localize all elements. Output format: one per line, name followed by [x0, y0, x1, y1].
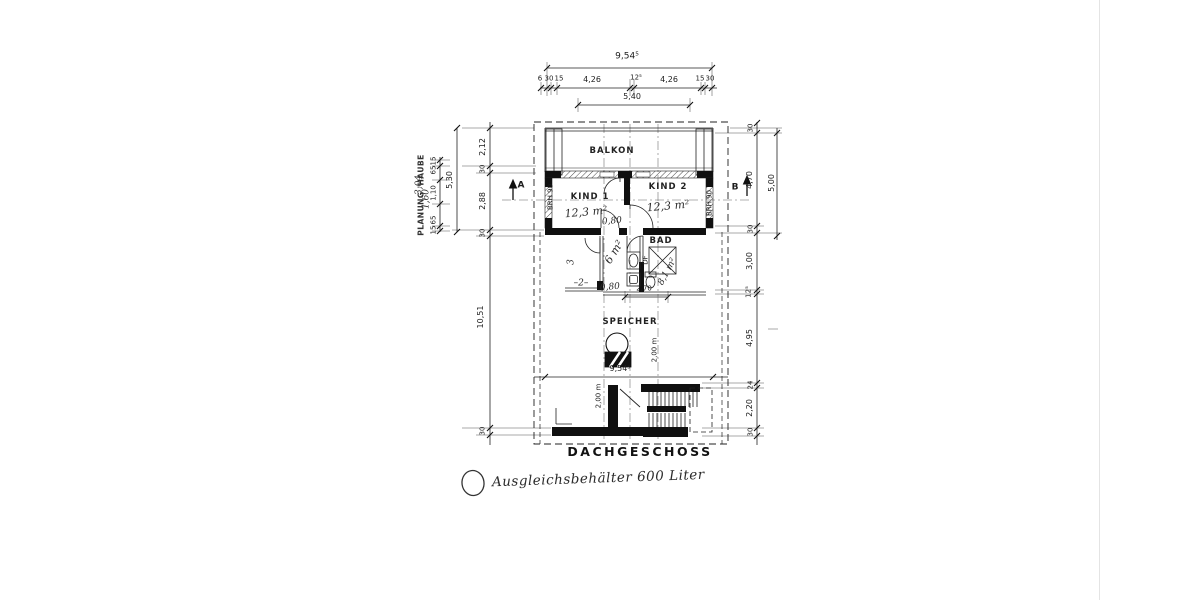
room-bad: BAD — [649, 237, 672, 246]
kind-partition-wall — [624, 178, 630, 205]
roof-outline-dashed — [534, 122, 728, 444]
dim-top-15l: 15 — [555, 76, 564, 83]
dim-right-30b: 30 — [748, 225, 755, 234]
headroom-line-a: 2,00 m — [652, 338, 659, 363]
room-kind2-area: 12,3 m² — [646, 199, 690, 214]
door-width-a: 0,80 — [602, 217, 623, 228]
dim-top-426l: 4,26 — [583, 76, 601, 84]
scan-edge-line — [1099, 0, 1100, 600]
room-balkon: BALKON — [589, 147, 634, 156]
sill-label-left: BRH 90 — [548, 184, 555, 210]
dim-right-30c: 30 — [748, 428, 755, 437]
dim-top-30l: 30 — [545, 76, 554, 83]
dim-inner-total: 9,54⁵ — [609, 365, 630, 373]
roof-window-label: DF — [643, 255, 650, 264]
section-a-label: A — [518, 182, 525, 191]
dim-left-110: 1,10 — [431, 185, 438, 201]
dim-top-total: 9,54⁵ — [615, 53, 639, 62]
dim-top-540: 5,40 — [623, 93, 641, 101]
dim-right-30a: 30 — [748, 124, 755, 133]
dim-left-288: 2,88 — [479, 192, 487, 210]
floor-plan-drawing — [0, 0, 1200, 600]
scanned-floorplan-page: 9,54⁵ 6 30 15 4,26 12⁵ 4,26 15 30 5,40 P… — [0, 0, 1200, 600]
door-width-b: 0,80 — [600, 283, 621, 294]
front-wall — [545, 171, 713, 178]
room-speicher: SPEICHER — [602, 318, 657, 327]
dim-right-24: 24 — [748, 381, 755, 390]
dim-left-30c: 30 — [480, 427, 487, 436]
dim-left-hw304: 3,04 — [416, 175, 425, 195]
headroom-line-b: 2,00 m — [596, 384, 603, 409]
middle-wall — [545, 228, 706, 235]
floor-title: DACHGESCHOSS — [567, 446, 712, 459]
dim-left-15a: 15 — [431, 226, 438, 235]
dim-left-530: 5,30 — [446, 171, 454, 189]
sill-label-right: BRH 90 — [707, 190, 714, 216]
storage-depth-note: 3 — [568, 259, 577, 265]
room-kind1: KIND 1 — [571, 193, 610, 202]
dim-right-495: 4,95 — [746, 329, 754, 347]
dim-bad-270: 2,70 — [636, 286, 652, 293]
dim-right-300: 3,00 — [746, 252, 754, 270]
dim-top-30r: 30 — [706, 76, 715, 83]
section-b-label: B — [732, 184, 739, 193]
dim-top-6: 6 — [538, 76, 542, 83]
dim-left-212: 2,12 — [479, 138, 487, 156]
note-circle-icon — [460, 469, 485, 497]
dim-top-125: 12⁵ — [630, 75, 642, 82]
dim-top-426r: 4,26 — [660, 76, 678, 84]
dim-left-30a: 30 — [480, 165, 487, 174]
dim-right-470: 4,70 — [746, 171, 754, 189]
chimney — [605, 333, 631, 367]
dim-left-1051: 10,51 — [477, 306, 485, 329]
dim-right-500: 5,00 — [768, 174, 776, 192]
dim-left-65a: 65 — [431, 216, 438, 225]
room-kind2: KIND 2 — [649, 183, 688, 192]
dim-right-220: 2,20 — [746, 399, 754, 417]
storage-width-note: –2– — [574, 280, 589, 289]
dim-right-125: 12⁵ — [746, 286, 753, 298]
dim-top-15r: 15 — [696, 76, 705, 83]
dim-left-15b: 15 — [431, 157, 438, 166]
dim-left-30b: 30 — [480, 229, 487, 238]
dim-left-65b: 65 — [431, 166, 438, 175]
